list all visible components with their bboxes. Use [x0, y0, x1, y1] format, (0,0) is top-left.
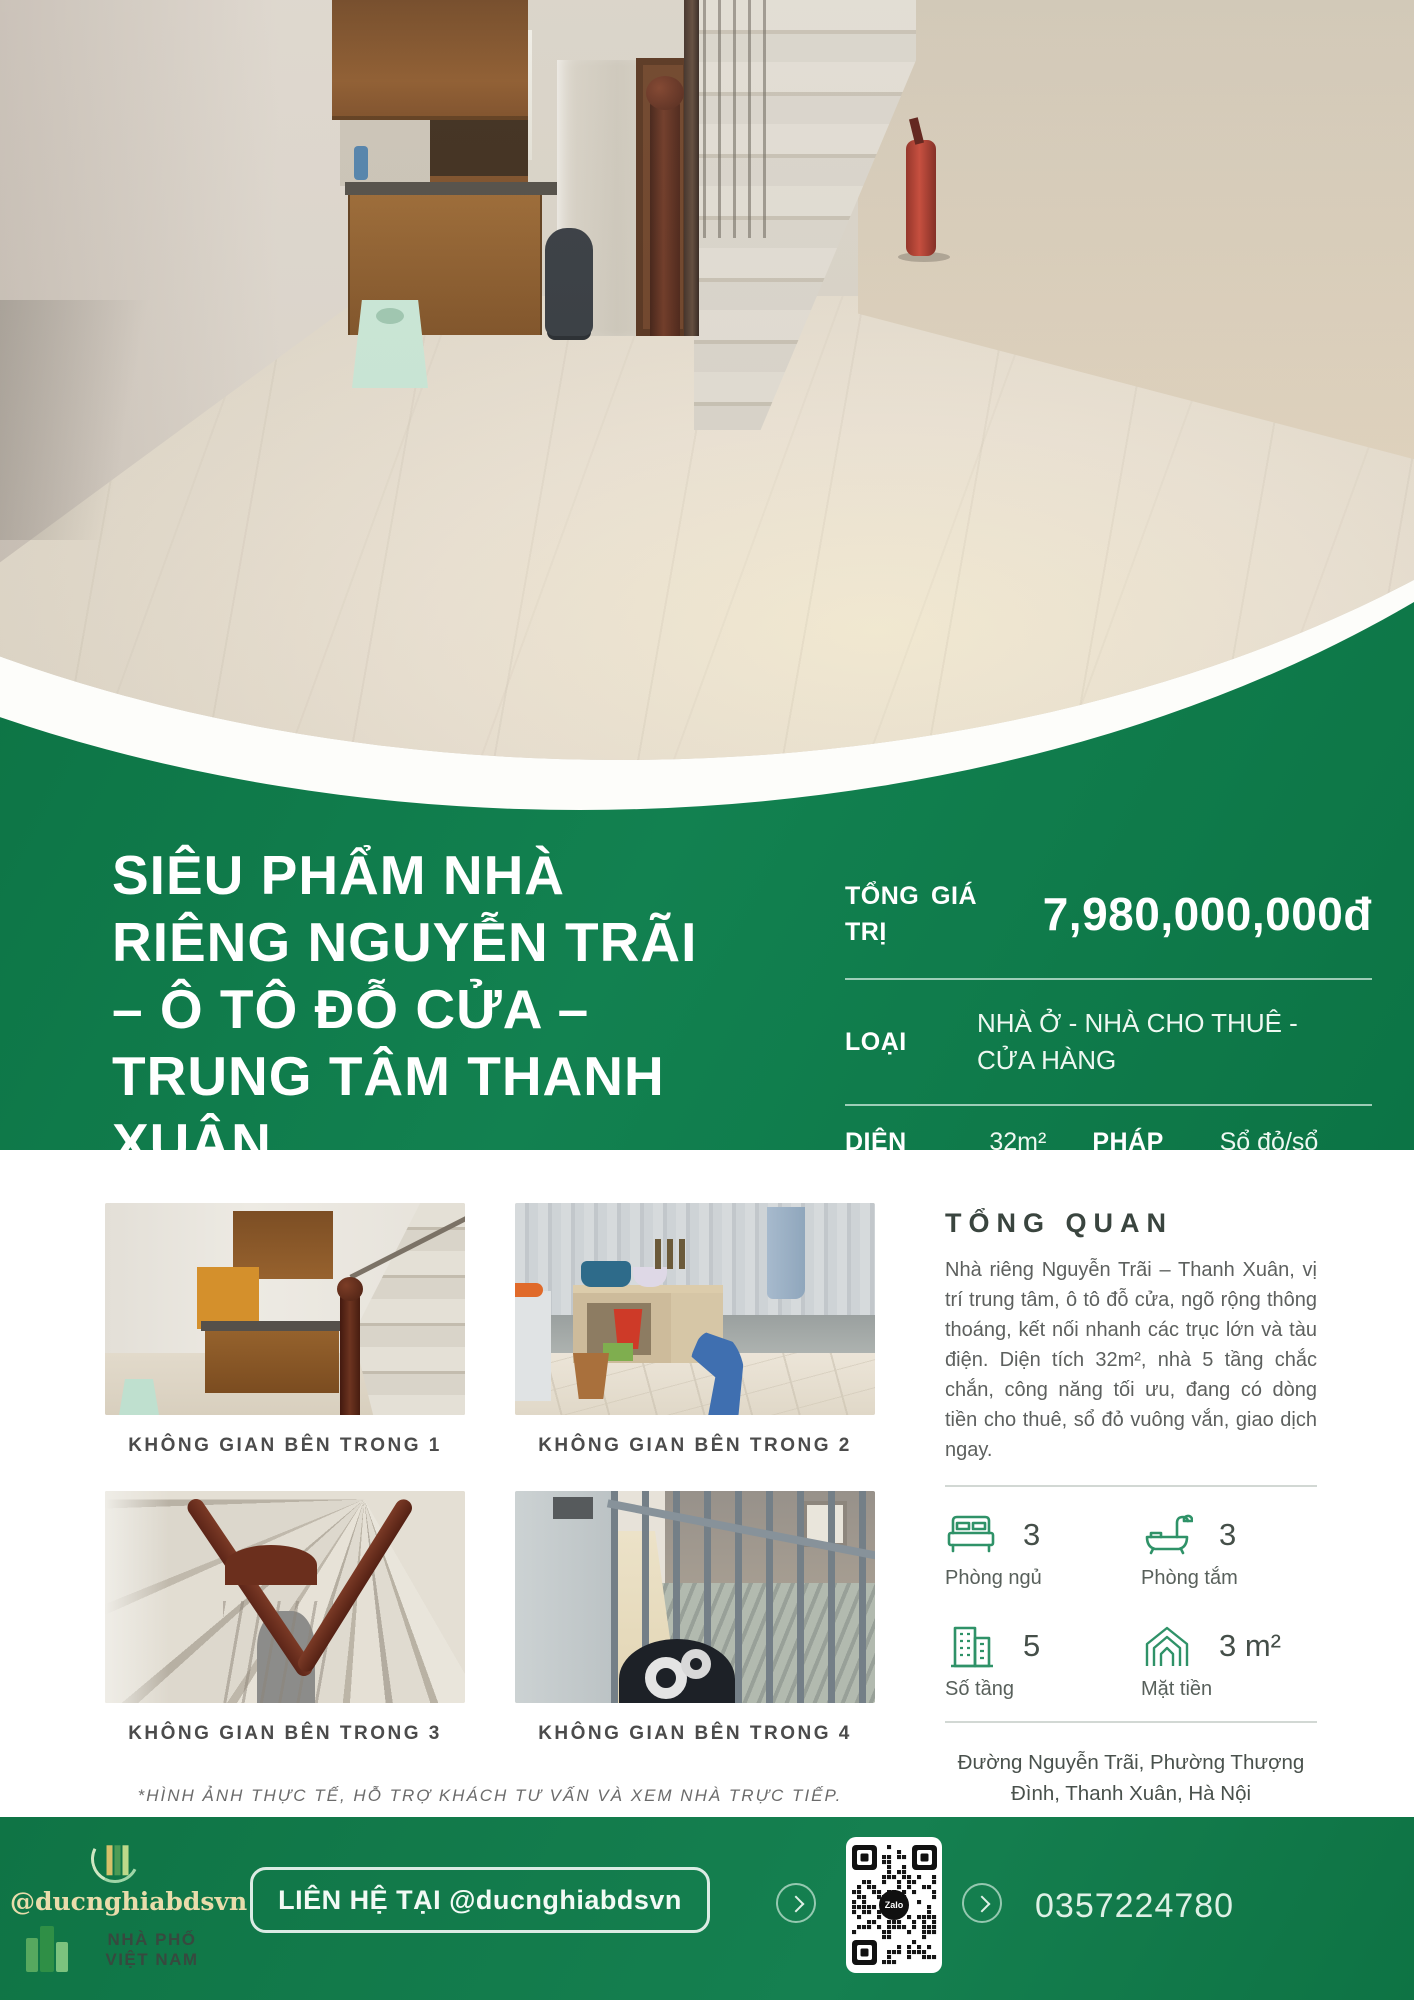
stat-label: Số tầng: [945, 1678, 1141, 1701]
plastic-stool: [119, 1379, 159, 1415]
stat-frontage: 3 m² Mặt tiền: [1141, 1624, 1317, 1701]
chevron-right-icon: [776, 1883, 816, 1923]
stat-value: 3: [1219, 1517, 1236, 1553]
gallery-item: KHÔNG GIAN BÊN TRONG 3: [105, 1491, 465, 1745]
logo-buildings: [107, 1845, 129, 1875]
divider: [945, 1485, 1317, 1487]
handrail-curve: [225, 1545, 317, 1585]
property-type-row: LOẠI NHÀ Ở - NHÀ CHO THUÊ - CỬA HÀNG: [845, 996, 1372, 1088]
listing-title: SIÊU PHẨM NHÀ RIÊNG NGUYỄN TRÃI – Ô TÔ Đ…: [112, 842, 792, 1177]
brand-row: NHÀ PHỐ VIỆT NAM: [10, 1924, 220, 1976]
photo-caption: KHÔNG GIAN BÊN TRONG 3: [105, 1723, 465, 1745]
agent-handle: @ducnghiabdsvn: [10, 1887, 220, 1916]
total-price-value: 7,980,000,000đ: [977, 887, 1372, 941]
bathtub-icon: [1141, 1513, 1193, 1557]
gallery-item: KHÔNG GIAN BÊN TRONG 1: [105, 1203, 465, 1457]
blue-basin: [581, 1261, 631, 1287]
stat-bathrooms: 3 Phòng tắm: [1141, 1513, 1317, 1590]
total-price-label: TỔNG GIÁ TRỊ: [845, 878, 977, 950]
photo-caption: KHÔNG GIAN BÊN TRONG 2: [515, 1435, 875, 1457]
property-type-label: LOẠI: [845, 1024, 977, 1060]
house-frontage-icon: [1141, 1624, 1193, 1668]
orange-clamp: [515, 1283, 543, 1297]
agent-logo-icon: [85, 1829, 145, 1889]
orange-backsplash: [197, 1267, 259, 1329]
stat-label: Phòng ngủ: [945, 1567, 1141, 1590]
contact-button[interactable]: LIÊN HỆ TẠI @ducnghiabdsvn: [250, 1867, 710, 1933]
phone-number[interactable]: 0357224780: [1035, 1887, 1234, 1926]
helmet-logo: [681, 1649, 711, 1679]
title-line: SIÊU PHẨM NHÀ: [112, 842, 792, 909]
stat-bedrooms: 3 Phòng ngủ: [945, 1513, 1141, 1590]
stats-grid: 3 Phòng ngủ: [945, 1513, 1317, 1701]
total-price-row: TỔNG GIÁ TRỊ 7,980,000,000đ: [845, 866, 1372, 962]
balcony-wall: [515, 1491, 611, 1703]
stat-value: 3: [1023, 1517, 1040, 1553]
disclaimer-note: *HÌNH ẢNH THỰC TẾ, HỖ TRỢ KHÁCH TƯ VẤN V…: [105, 1786, 875, 1806]
newel-knob: [337, 1277, 363, 1301]
contact-footer: @ducnghiabdsvn NHÀ PHỐ VIỆT NAM LIÊN HỆ …: [0, 1817, 1414, 2000]
divider: [845, 978, 1372, 980]
building-icon: [945, 1624, 997, 1668]
photo-interior-4-balcony: [515, 1491, 875, 1703]
listing-facts-table: TỔNG GIÁ TRỊ 7,980,000,000đ LOẠI NHÀ Ở -…: [845, 866, 1372, 1186]
photo-gallery: KHÔNG GIAN BÊN TRONG 1: [105, 1203, 875, 1745]
gallery-item: KHÔNG GIAN BÊN TRONG 2: [515, 1203, 875, 1457]
property-address: Đường Nguyễn Trãi, Phường Thượng Đình, T…: [945, 1747, 1317, 1809]
counter: [201, 1321, 343, 1331]
photo-caption: KHÔNG GIAN BÊN TRONG 4: [515, 1723, 875, 1745]
stat-label: Phòng tắm: [1141, 1567, 1317, 1590]
title-line: RIÊNG NGUYỄN TRÃI: [112, 909, 792, 976]
washing-machine: [515, 1291, 551, 1401]
title-line: TRUNG TÂM THANH: [112, 1043, 792, 1110]
title-line: – Ô TÔ ĐỖ CỬA –: [112, 976, 792, 1043]
overview-column: TỔNG QUAN Nhà riêng Nguyễn Trãi – Thanh …: [945, 1208, 1317, 1809]
newel-post: [340, 1291, 360, 1415]
stat-floors: 5 Số tầng: [945, 1624, 1141, 1701]
white-wall: [105, 1491, 169, 1703]
nha-pho-logo-icon: [22, 1924, 74, 1976]
overview-heading: TỔNG QUAN: [945, 1208, 1317, 1239]
photo-interior-3-spiral-stairs: [105, 1491, 465, 1703]
brand-column: @ducnghiabdsvn NHÀ PHỐ VIỆT NAM: [10, 1835, 220, 1976]
chevron-right-icon: [962, 1883, 1002, 1923]
stat-label: Mặt tiền: [1141, 1678, 1317, 1701]
zalo-badge: Zalo: [879, 1890, 909, 1920]
photo-caption: KHÔNG GIAN BÊN TRONG 1: [105, 1435, 465, 1457]
photo-interior-2-rooftop: [515, 1203, 875, 1415]
details-section: KHÔNG GIAN BÊN TRONG 1: [0, 1150, 1414, 1817]
real-estate-flyer: SIÊU PHẨM NHÀ RIÊNG NGUYỄN TRÃI – Ô TÔ Đ…: [0, 0, 1414, 2000]
hanging-towel: [767, 1207, 805, 1299]
bed-icon: [945, 1513, 997, 1557]
brown-bin: [573, 1353, 609, 1399]
brand-name: NHÀ PHỐ VIỆT NAM: [84, 1930, 220, 1970]
bottles: [655, 1239, 685, 1269]
divider: [945, 1721, 1317, 1723]
divider: [845, 1104, 1372, 1106]
vent: [553, 1497, 593, 1519]
overview-description: Nhà riêng Nguyễn Trãi – Thanh Xuân, vị t…: [945, 1255, 1317, 1465]
stat-value: 3 m²: [1219, 1628, 1281, 1664]
photo-interior-1-kitchen: [105, 1203, 465, 1415]
property-type-value: NHÀ Ở - NHÀ CHO THUÊ - CỬA HÀNG: [977, 1005, 1337, 1079]
lower-cabinet: [205, 1331, 339, 1393]
zalo-qr-code: Zalo: [846, 1837, 942, 1973]
gallery-item: KHÔNG GIAN BÊN TRONG 4: [515, 1491, 875, 1745]
stat-value: 5: [1023, 1628, 1040, 1664]
top-green-section: SIÊU PHẨM NHÀ RIÊNG NGUYỄN TRÃI – Ô TÔ Đ…: [0, 0, 1414, 1150]
